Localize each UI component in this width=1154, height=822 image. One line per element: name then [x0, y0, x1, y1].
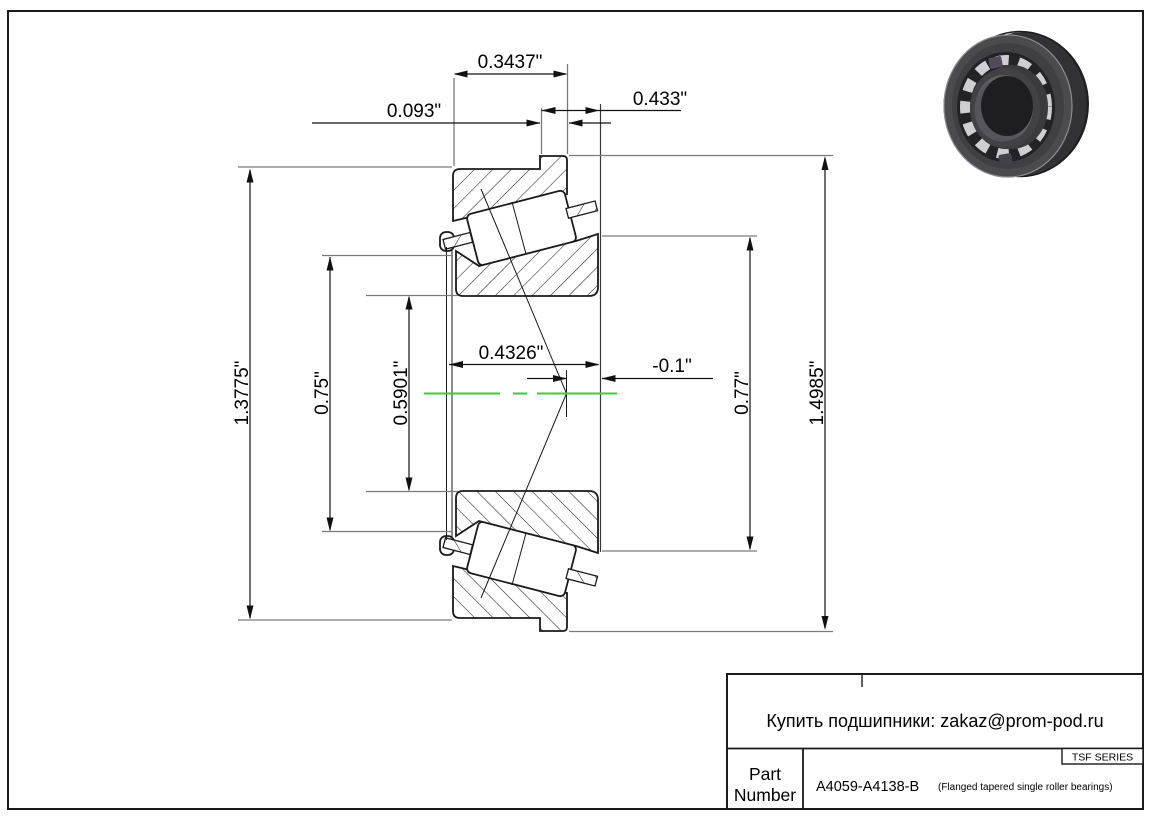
dim-flange-offset-label: -0.1" — [652, 356, 691, 377]
dim-cone-width-label: 0.4326" — [479, 343, 544, 364]
part-label-line1: Part — [749, 764, 781, 784]
cage-block-bottom — [998, 153, 1013, 166]
bearing-photo — [944, 32, 1089, 178]
dim-bore-label: 0.5901" — [391, 361, 412, 426]
dim-flange-od-label: 1.4985" — [807, 361, 828, 426]
dim-front-od-label: 0.75" — [312, 371, 333, 415]
series-label: TSF SERIES — [1072, 752, 1133, 764]
part-label-line2: Number — [734, 785, 796, 805]
contact-text: Купить подшипники: zakaz@prom-pod.ru — [766, 711, 1103, 731]
cross-section-lower-half — [440, 394, 598, 632]
bearing-drawing-canvas: 0.3437" 0.093" 0.433" 0.4326" -0.1" 1.37… — [0, 0, 1154, 817]
drawing-page: 0.3437" 0.093" 0.433" 0.4326" -0.1" 1.37… — [0, 0, 1154, 817]
part-description: (Flanged tapered single roller bearings) — [938, 782, 1113, 793]
cage-right-strip — [566, 201, 598, 218]
dim-total-width-label: 0.433" — [633, 89, 687, 110]
dim-cup-width-label: 0.3437" — [478, 52, 543, 73]
dim-flange-width-label: 0.093" — [387, 101, 441, 122]
part-number: A4059-A4138-B — [816, 779, 919, 795]
dim-rib-od-label: 0.77" — [732, 371, 753, 415]
dim-cup-od-label: 1.3775" — [232, 361, 253, 426]
bearing-bore — [981, 76, 1033, 136]
title-block: Купить подшипники: zakaz@prom-pod.ru TSF… — [727, 674, 1143, 809]
bearing-cross-section — [424, 104, 617, 631]
